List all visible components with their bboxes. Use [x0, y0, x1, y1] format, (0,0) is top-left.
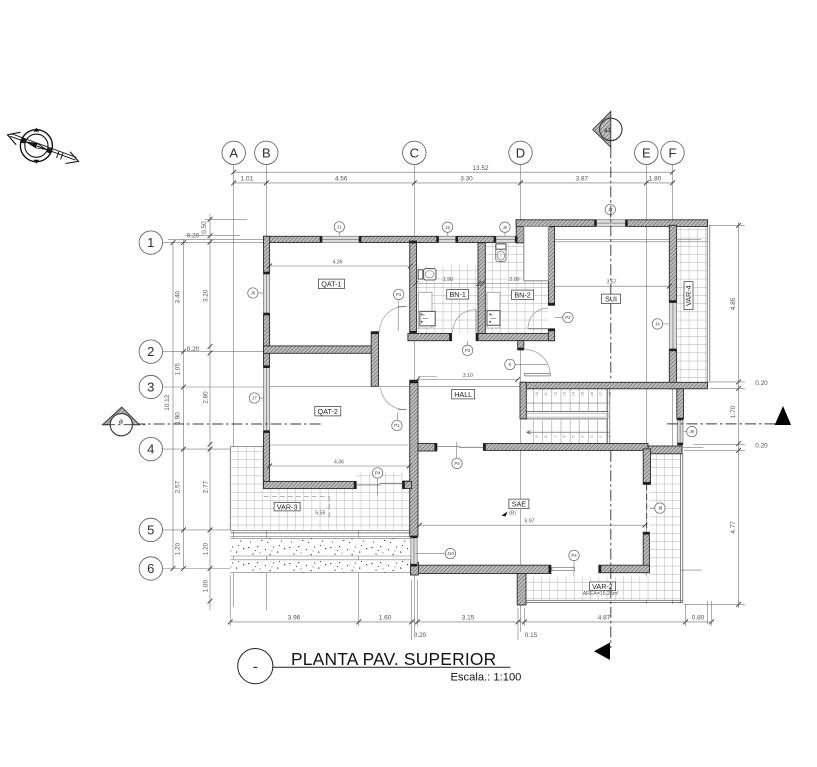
svg-text:3.10: 3.10 [463, 373, 473, 379]
svg-text:0.80: 0.80 [692, 614, 705, 621]
svg-text:11: 11 [544, 392, 548, 396]
svg-text:1.05: 1.05 [174, 363, 181, 376]
svg-text:C: C [410, 145, 419, 160]
svg-text:4.85: 4.85 [730, 297, 737, 310]
svg-text:Escala.: 1:100: Escala.: 1:100 [451, 671, 522, 683]
svg-text:1.80: 1.80 [649, 175, 662, 182]
svg-text:VAR-3: VAR-3 [277, 502, 298, 511]
svg-text:a: a [119, 417, 123, 426]
svg-text:J4: J4 [655, 322, 660, 327]
svg-text:10.12: 10.12 [164, 394, 171, 410]
svg-text:BN-2: BN-2 [514, 290, 530, 299]
svg-text:J6: J6 [251, 291, 256, 296]
svg-text:VAR-2: VAR-2 [592, 582, 613, 591]
svg-text:1: 1 [147, 235, 154, 250]
svg-text:2: 2 [147, 344, 154, 359]
svg-text:B: B [262, 145, 271, 160]
svg-text:6: 6 [563, 435, 567, 437]
svg-text:1.90: 1.90 [443, 277, 453, 283]
svg-text:1.01: 1.01 [241, 175, 254, 182]
svg-text:1.90: 1.90 [174, 412, 181, 425]
svg-text:3: 3 [147, 380, 154, 395]
svg-text:3.15: 3.15 [462, 614, 475, 621]
svg-text:VAR-4: VAR-4 [684, 285, 693, 306]
svg-text:10: 10 [535, 392, 539, 396]
svg-text:1.60: 1.60 [379, 614, 392, 621]
svg-text:3.87: 3.87 [576, 175, 589, 182]
svg-text:HALL: HALL [454, 390, 472, 399]
svg-text:QAT-2: QAT-2 [318, 407, 338, 416]
svg-text:P4: P4 [571, 553, 577, 558]
svg-text:0.50: 0.50 [201, 221, 208, 234]
svg-text:6: 6 [147, 561, 154, 576]
svg-text:J9: J9 [689, 429, 694, 434]
svg-text:-: - [253, 659, 258, 676]
svg-text:P1: P1 [394, 423, 400, 428]
svg-text:13.52: 13.52 [473, 165, 489, 172]
svg-text:5.56: 5.56 [315, 511, 325, 517]
svg-text:4.87: 4.87 [598, 614, 611, 621]
svg-text:4: 4 [581, 435, 585, 437]
svg-text:0.20: 0.20 [755, 442, 768, 449]
svg-text:ÁREA=15,25m²: ÁREA=15,25m² [583, 590, 619, 597]
svg-text:4.77: 4.77 [730, 521, 737, 534]
svg-text:0.20: 0.20 [414, 632, 427, 639]
svg-text:9: 9 [535, 435, 539, 437]
svg-text:QAT-1: QAT-1 [321, 279, 341, 288]
svg-text:J8: J8 [658, 506, 663, 511]
svg-text:A: A [229, 145, 238, 160]
svg-text:3.30: 3.30 [460, 175, 473, 182]
svg-text:4.36: 4.36 [334, 459, 344, 465]
svg-text:4.36: 4.36 [332, 260, 342, 266]
svg-text:3: 3 [590, 435, 594, 437]
svg-text:1.70: 1.70 [730, 405, 737, 418]
svg-text:5: 5 [147, 523, 154, 538]
svg-text:1.00: 1.00 [202, 580, 209, 593]
svg-text:3.40: 3.40 [174, 290, 181, 303]
svg-text:2.00: 2.00 [509, 277, 519, 283]
svg-text:3.20: 3.20 [202, 289, 209, 302]
svg-text:J2: J2 [503, 225, 508, 230]
svg-text:16: 16 [590, 392, 594, 396]
svg-text:2.57: 2.57 [174, 480, 181, 493]
svg-text:1.20: 1.20 [174, 542, 181, 555]
svg-text:P1: P1 [396, 292, 402, 297]
svg-text:SAE: SAE [512, 500, 527, 509]
svg-text:15: 15 [581, 392, 585, 396]
svg-text:4: 4 [147, 442, 154, 457]
svg-text:2: 2 [599, 435, 603, 437]
svg-text:0.15: 0.15 [525, 632, 538, 639]
svg-text:F: F [669, 145, 677, 160]
svg-text:2.77: 2.77 [202, 480, 209, 493]
svg-text:0.20: 0.20 [187, 233, 200, 240]
svg-text:4.56: 4.56 [335, 175, 348, 182]
svg-text:14: 14 [572, 392, 576, 396]
svg-text:13: 13 [563, 392, 567, 396]
svg-text:1: 1 [608, 435, 612, 437]
svg-text:8: 8 [544, 435, 548, 437]
svg-text:J2: J2 [445, 225, 450, 230]
svg-text:18: 18 [608, 392, 612, 396]
svg-text:E: E [642, 145, 651, 160]
svg-text:3.57: 3.57 [606, 280, 616, 286]
svg-text:0.20: 0.20 [187, 346, 200, 353]
svg-text:J10: J10 [447, 551, 455, 556]
svg-text:12: 12 [553, 392, 557, 396]
svg-text:7: 7 [553, 435, 557, 437]
svg-text:17: 17 [599, 392, 603, 396]
svg-text:2.80: 2.80 [202, 391, 209, 404]
svg-text:(B): (B) [509, 511, 516, 517]
svg-text:BN-1: BN-1 [450, 290, 466, 299]
svg-text:P2: P2 [465, 348, 471, 353]
svg-text:3.96: 3.96 [288, 614, 301, 621]
svg-text:PLANTA PAV. SUPERIOR: PLANTA PAV. SUPERIOR [291, 649, 496, 669]
svg-text:P2: P2 [565, 315, 571, 320]
svg-text:J7: J7 [252, 396, 257, 401]
svg-text:1.20: 1.20 [202, 542, 209, 555]
svg-text:6.97: 6.97 [524, 519, 534, 525]
svg-text:0.20: 0.20 [755, 380, 768, 387]
svg-text:P4: P4 [375, 471, 381, 476]
svg-text:D: D [516, 145, 525, 160]
svg-text:a1: a1 [604, 128, 611, 134]
svg-text:P4: P4 [454, 461, 460, 466]
svg-text:5: 5 [572, 435, 576, 437]
svg-text:J1: J1 [337, 225, 342, 230]
